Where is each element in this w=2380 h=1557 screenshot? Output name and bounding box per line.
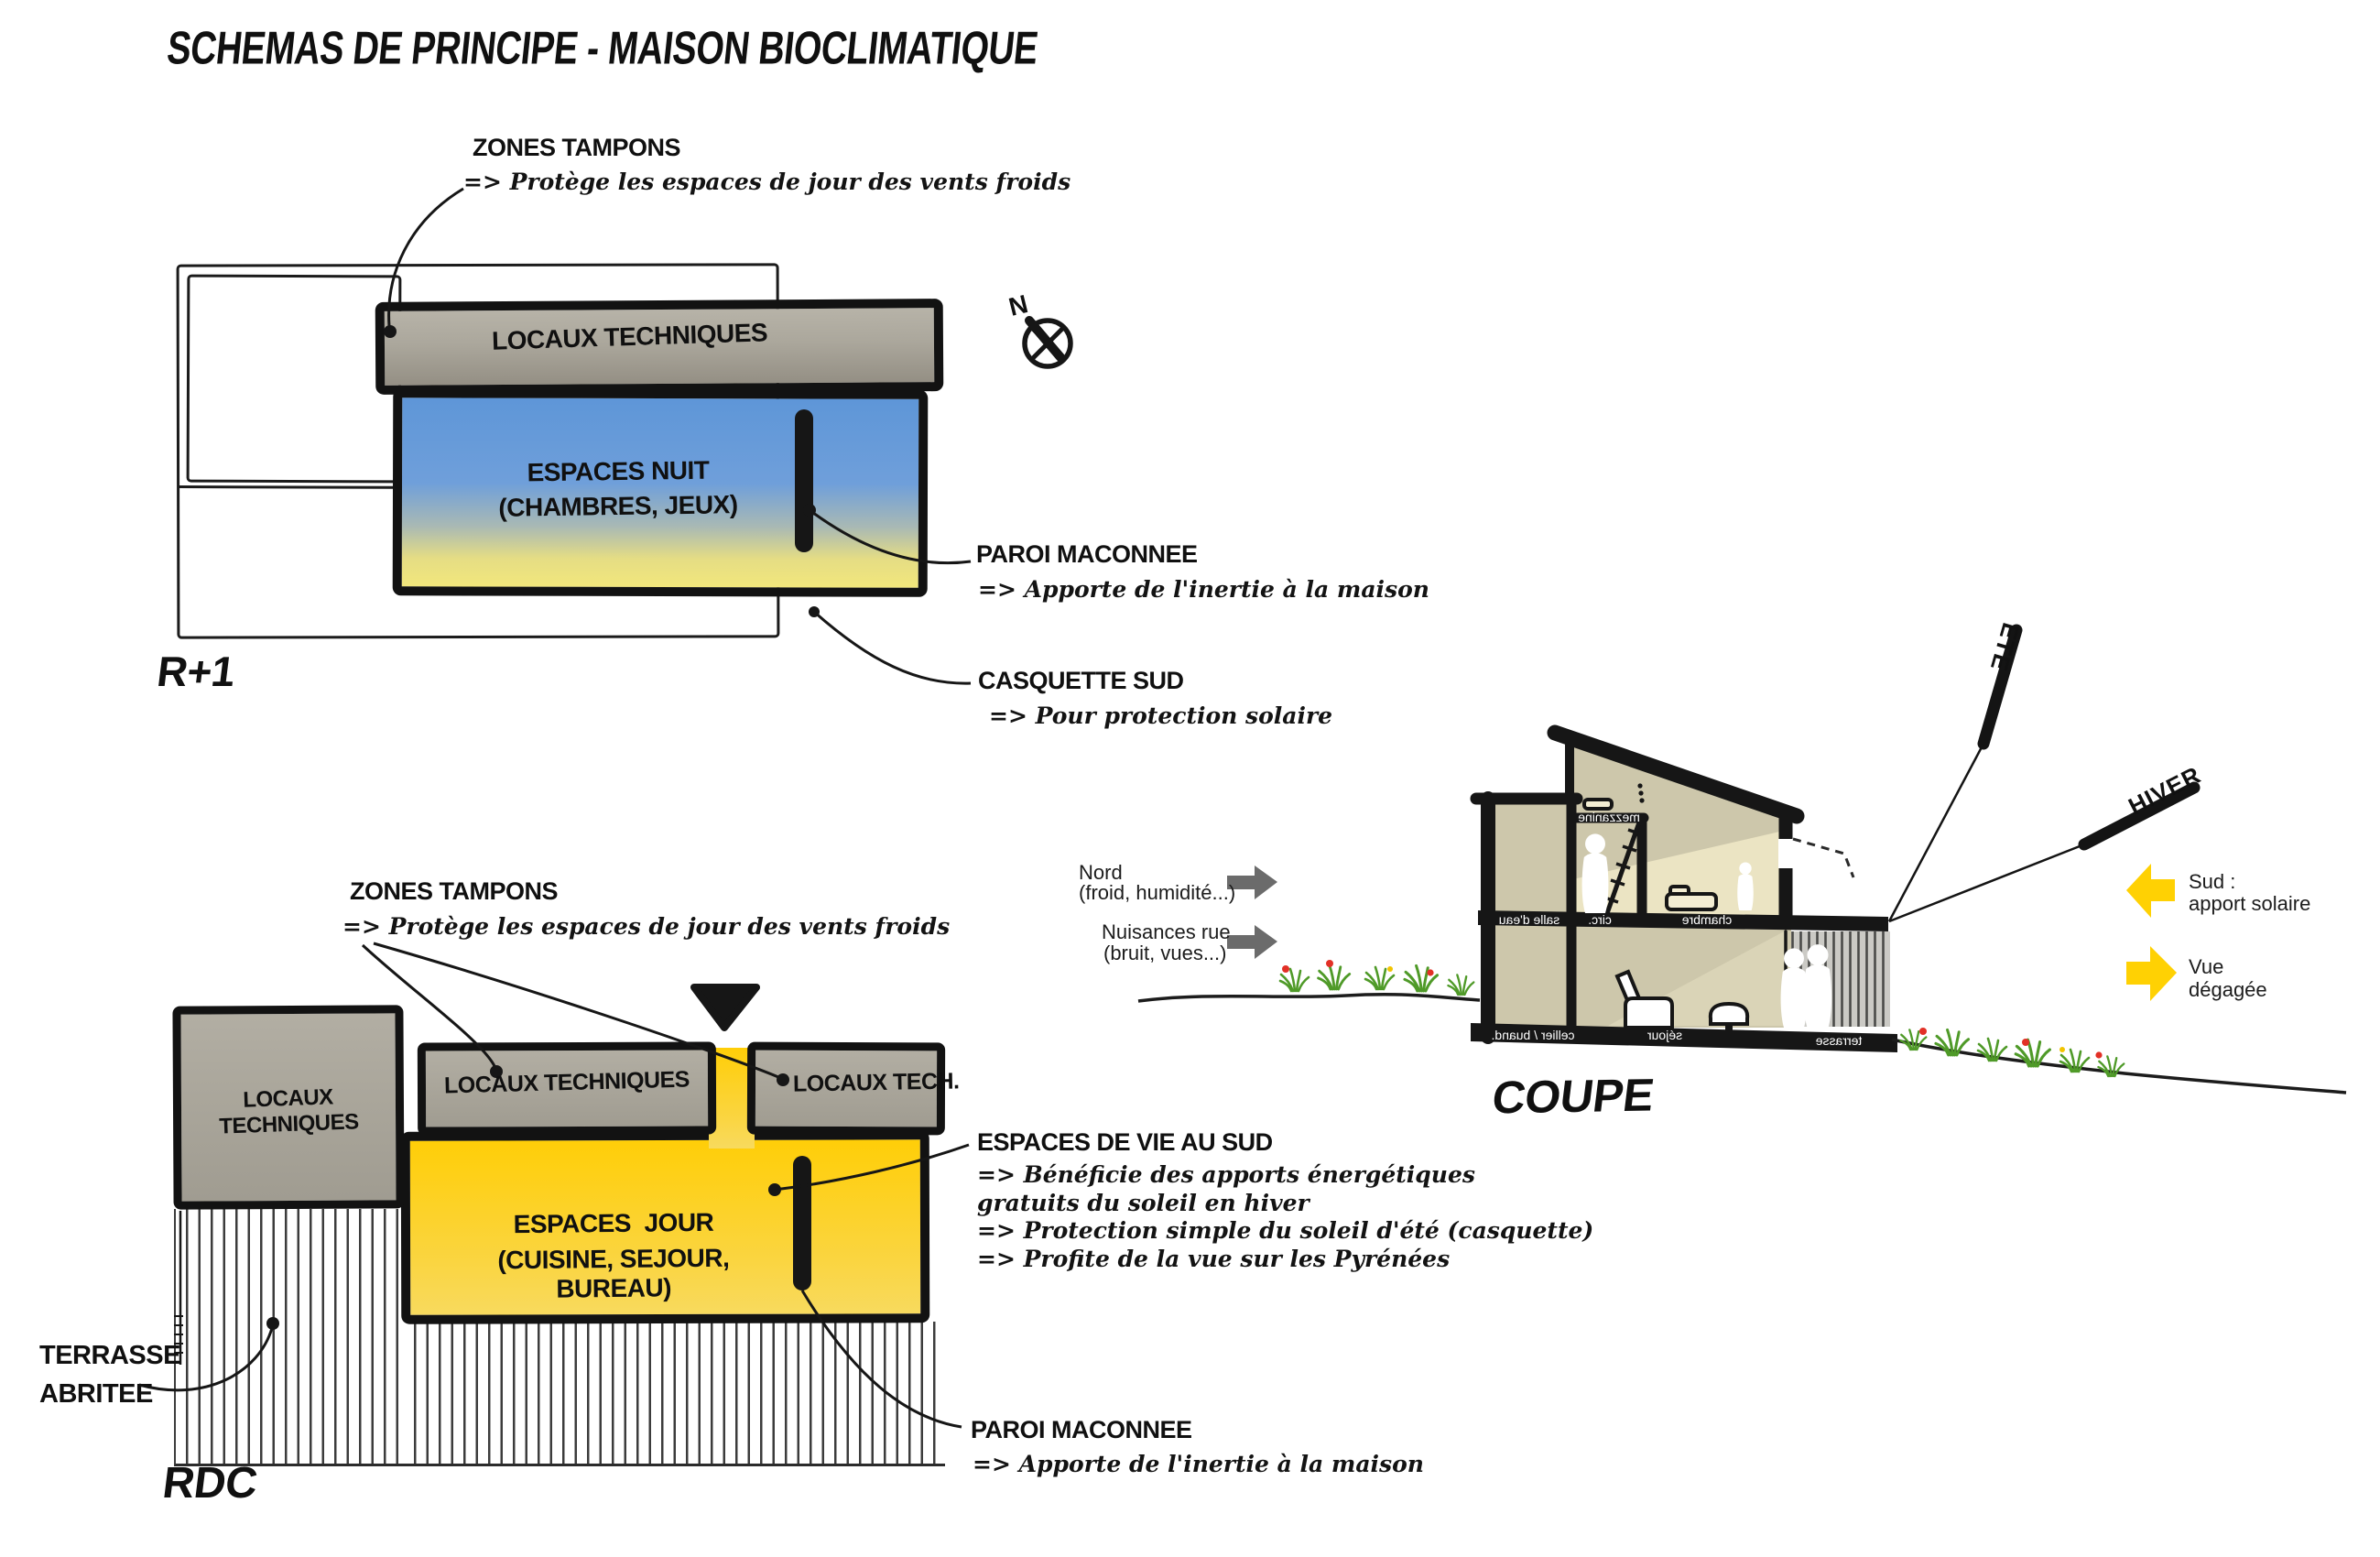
terrace-label-line1: TERRASSE	[39, 1341, 180, 1371]
callout-sud-line1: Sud :	[2189, 871, 2235, 892]
coupe-people	[1582, 833, 1832, 1028]
callout-nord-line1: Nord	[1079, 862, 1123, 883]
bioclimatic-schematic: SCHEMAS DE PRINCIPE - MAISON BIOCLIMATIQ…	[0, 0, 2380, 1557]
annotation-zones-tampons-rdc-body: => Protège les espaces de jour des vents…	[342, 913, 950, 940]
rdc-locaux-left-label: LOCAUX TECHNIQUES	[177, 1083, 400, 1141]
coupe-label: COUPE	[1489, 1068, 1657, 1124]
sejour-sofa	[1625, 998, 1672, 1028]
sun-rays	[1889, 630, 2194, 921]
annotation-espaces-vie-line4: => Profite de la vue sur les Pyrénées	[977, 1246, 1450, 1272]
rdc-locaux-right-label: LOCAUX TECH.	[793, 1068, 960, 1097]
r1-room-label-line1: ESPACES NUIT	[449, 454, 788, 488]
north-nuisance-arrows	[1227, 866, 1277, 959]
rdc-terrace-hatch-left	[174, 1209, 408, 1466]
coupe-room-circ: circ.	[1566, 912, 1634, 927]
compass-north-letter: N	[1005, 289, 1030, 322]
callout-vue-line1: Vue	[2189, 956, 2223, 977]
annotation-espaces-vie-line1: => Bénéficie des apports énergétiques	[977, 1161, 1475, 1188]
south-view-arrows	[2126, 864, 2177, 1001]
callout-sud-line2: apport solaire	[2189, 893, 2310, 914]
vue-arrow-icon	[2126, 946, 2177, 1001]
sun-ray-hiver-label: HIVER	[2119, 758, 2211, 823]
ground-line	[1138, 995, 2346, 1093]
coupe-ladder	[1604, 783, 1645, 916]
annotation-espaces-vie-line2: gratuits du soleil en hiver	[977, 1190, 1310, 1216]
annotation-espaces-vie-line3: => Protection simple du soleil d'été (ca…	[977, 1217, 1593, 1244]
rdc-terrace-hatch-right	[404, 1322, 945, 1466]
annotation-paroi-r1-body: => Apporte de l'inertie à la maison	[978, 576, 1429, 603]
annotation-paroi-r1-title: PAROI MACONNEE	[976, 540, 1198, 569]
annotation-zones-tampons-r1-title: ZONES TAMPONS	[473, 134, 680, 162]
page-title: SCHEMAS DE PRINCIPE - MAISON BIOCLIMATIQ…	[165, 20, 1041, 74]
annotation-paroi-rdc-title: PAROI MACONNEE	[971, 1416, 1192, 1444]
sud-arrow-icon	[2126, 864, 2175, 918]
rdc-floor-label: RDC	[160, 1458, 260, 1508]
coupe-room-chambre: chambre	[1659, 912, 1755, 927]
coupe-terrace-screen	[1791, 931, 1890, 1027]
entrance-arrow-icon	[694, 987, 756, 1028]
callout-nuisances-line2: (bruit, vues...)	[1103, 942, 1226, 964]
coupe-room-salle-eau: salle d'eau	[1482, 912, 1577, 927]
coupe-section-drawing	[1138, 630, 2346, 1093]
nuisances-arrow-icon	[1227, 925, 1277, 959]
rdc-room-label-line1: ESPACES JOUR	[440, 1207, 788, 1240]
r1-room-label-line2: (CHAMBRES, JEUX)	[449, 489, 788, 523]
annotation-zones-tampons-rdc-title: ZONES TAMPONS	[350, 877, 558, 906]
coupe-room-terrasse: terrasse	[1793, 1033, 1885, 1048]
compass-icon	[1025, 321, 1070, 366]
callout-vue-line2: dégagée	[2189, 979, 2267, 1000]
annotation-espaces-vie-title: ESPACES DE VIE AU SUD	[977, 1128, 1273, 1157]
chambre-bed	[1667, 894, 1716, 909]
annotation-casquette-body: => Pour protection solaire	[989, 702, 1332, 729]
annotation-zones-tampons-r1-body: => Protège les espaces de jour des vents…	[463, 169, 1070, 195]
grass-and-flowers	[1280, 960, 2124, 1076]
annotation-casquette-title: CASQUETTE SUD	[978, 667, 1184, 695]
annotation-paroi-rdc-body: => Apporte de l'inertie à la maison	[973, 1451, 1424, 1477]
rdc-room-label-line2: (CUISINE, SEJOUR, BUREAU)	[440, 1243, 788, 1305]
sun-ray-ete-label: ETE	[1982, 611, 2027, 684]
callout-nuisances-line1: Nuisances rue	[1102, 921, 1231, 942]
coupe-room-cellier: cellier / buand.	[1476, 1028, 1590, 1042]
r1-floor-label: R+1	[155, 647, 238, 696]
terrace-label-line2: ABRITEE	[39, 1379, 153, 1410]
coupe-room-sejour: séjour	[1619, 1028, 1711, 1042]
callout-nord-line2: (froid, humidité...)	[1079, 882, 1235, 903]
coupe-room-mezzanine: mezzanine	[1563, 810, 1655, 824]
mezzanine-mattress	[1584, 800, 1612, 809]
r1-left-room-outline	[187, 275, 402, 484]
sejour-armchair	[1711, 1004, 1747, 1024]
coupe-structure	[1476, 733, 1797, 1037]
